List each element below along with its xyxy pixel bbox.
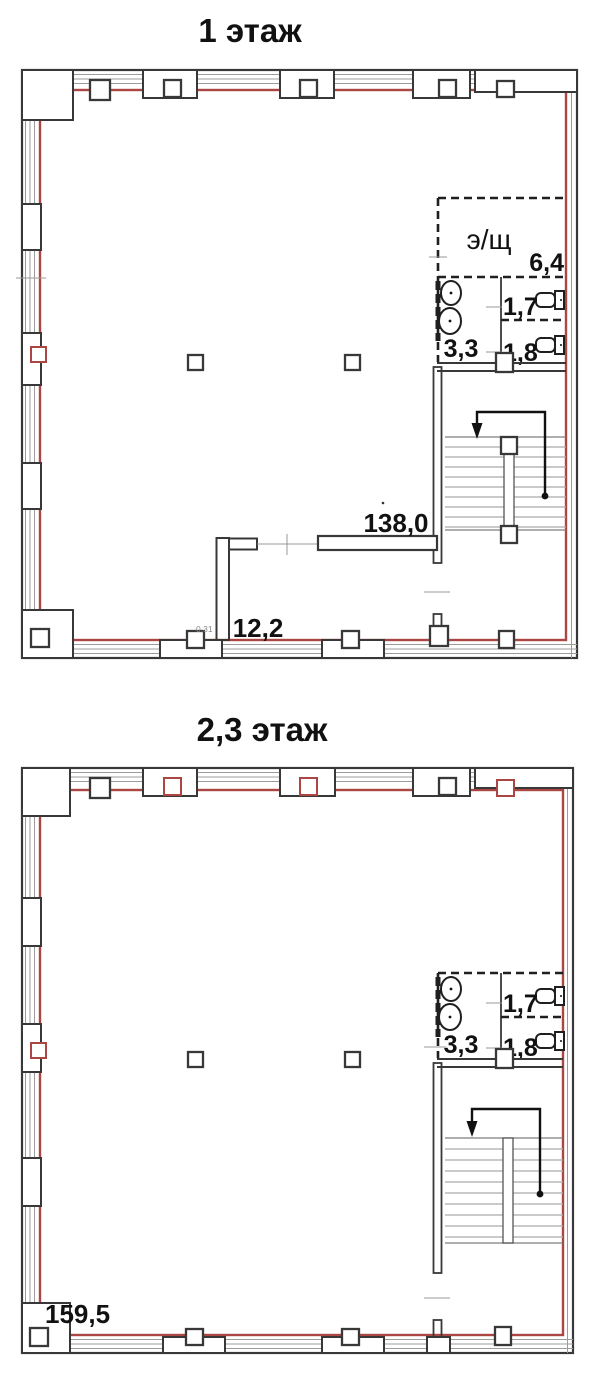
sink-icon [439, 308, 461, 334]
floor-plan-page: 1 этаж [0, 0, 600, 1400]
toilet-icon [536, 987, 564, 1005]
room-wc-small-area: 1,7 [503, 293, 538, 321]
toilet-icon [536, 336, 564, 354]
hall-column [345, 355, 360, 370]
floor2-outer-wall [22, 768, 573, 1353]
stair-stringer [503, 1138, 513, 1243]
room-electrical-label: э/щ [466, 224, 511, 255]
floor2-plan: 2,3 этаж [22, 711, 573, 1353]
floor1-plan: 1 этаж [16, 12, 577, 658]
sink-icon [439, 1004, 461, 1030]
main-hall-area: 138,0 [363, 508, 428, 538]
floor1-title: 1 этаж [198, 12, 302, 49]
room-wc-small-area: 1,7 [503, 990, 538, 1018]
floor2-title: 2,3 этаж [197, 711, 328, 748]
toilet-icon [536, 1032, 564, 1050]
room-washroom-area: 3,3 [444, 1031, 479, 1059]
floor-plan-drawing: 1 этаж [0, 0, 600, 1400]
wall-thickness-dim: 0.31 [196, 624, 213, 634]
main-hall-area: 159,5 [45, 1299, 110, 1329]
hall-column [345, 1052, 360, 1067]
room-electrical-area: 6,4 [529, 249, 564, 277]
hall-column [188, 355, 203, 370]
sink-icon [441, 977, 461, 1001]
sink-icon [441, 281, 461, 305]
room-washroom-area: 3,3 [444, 335, 479, 363]
toilet-icon [536, 291, 564, 309]
corridor-area: 12,2 [233, 613, 284, 643]
hall-column [188, 1052, 203, 1067]
